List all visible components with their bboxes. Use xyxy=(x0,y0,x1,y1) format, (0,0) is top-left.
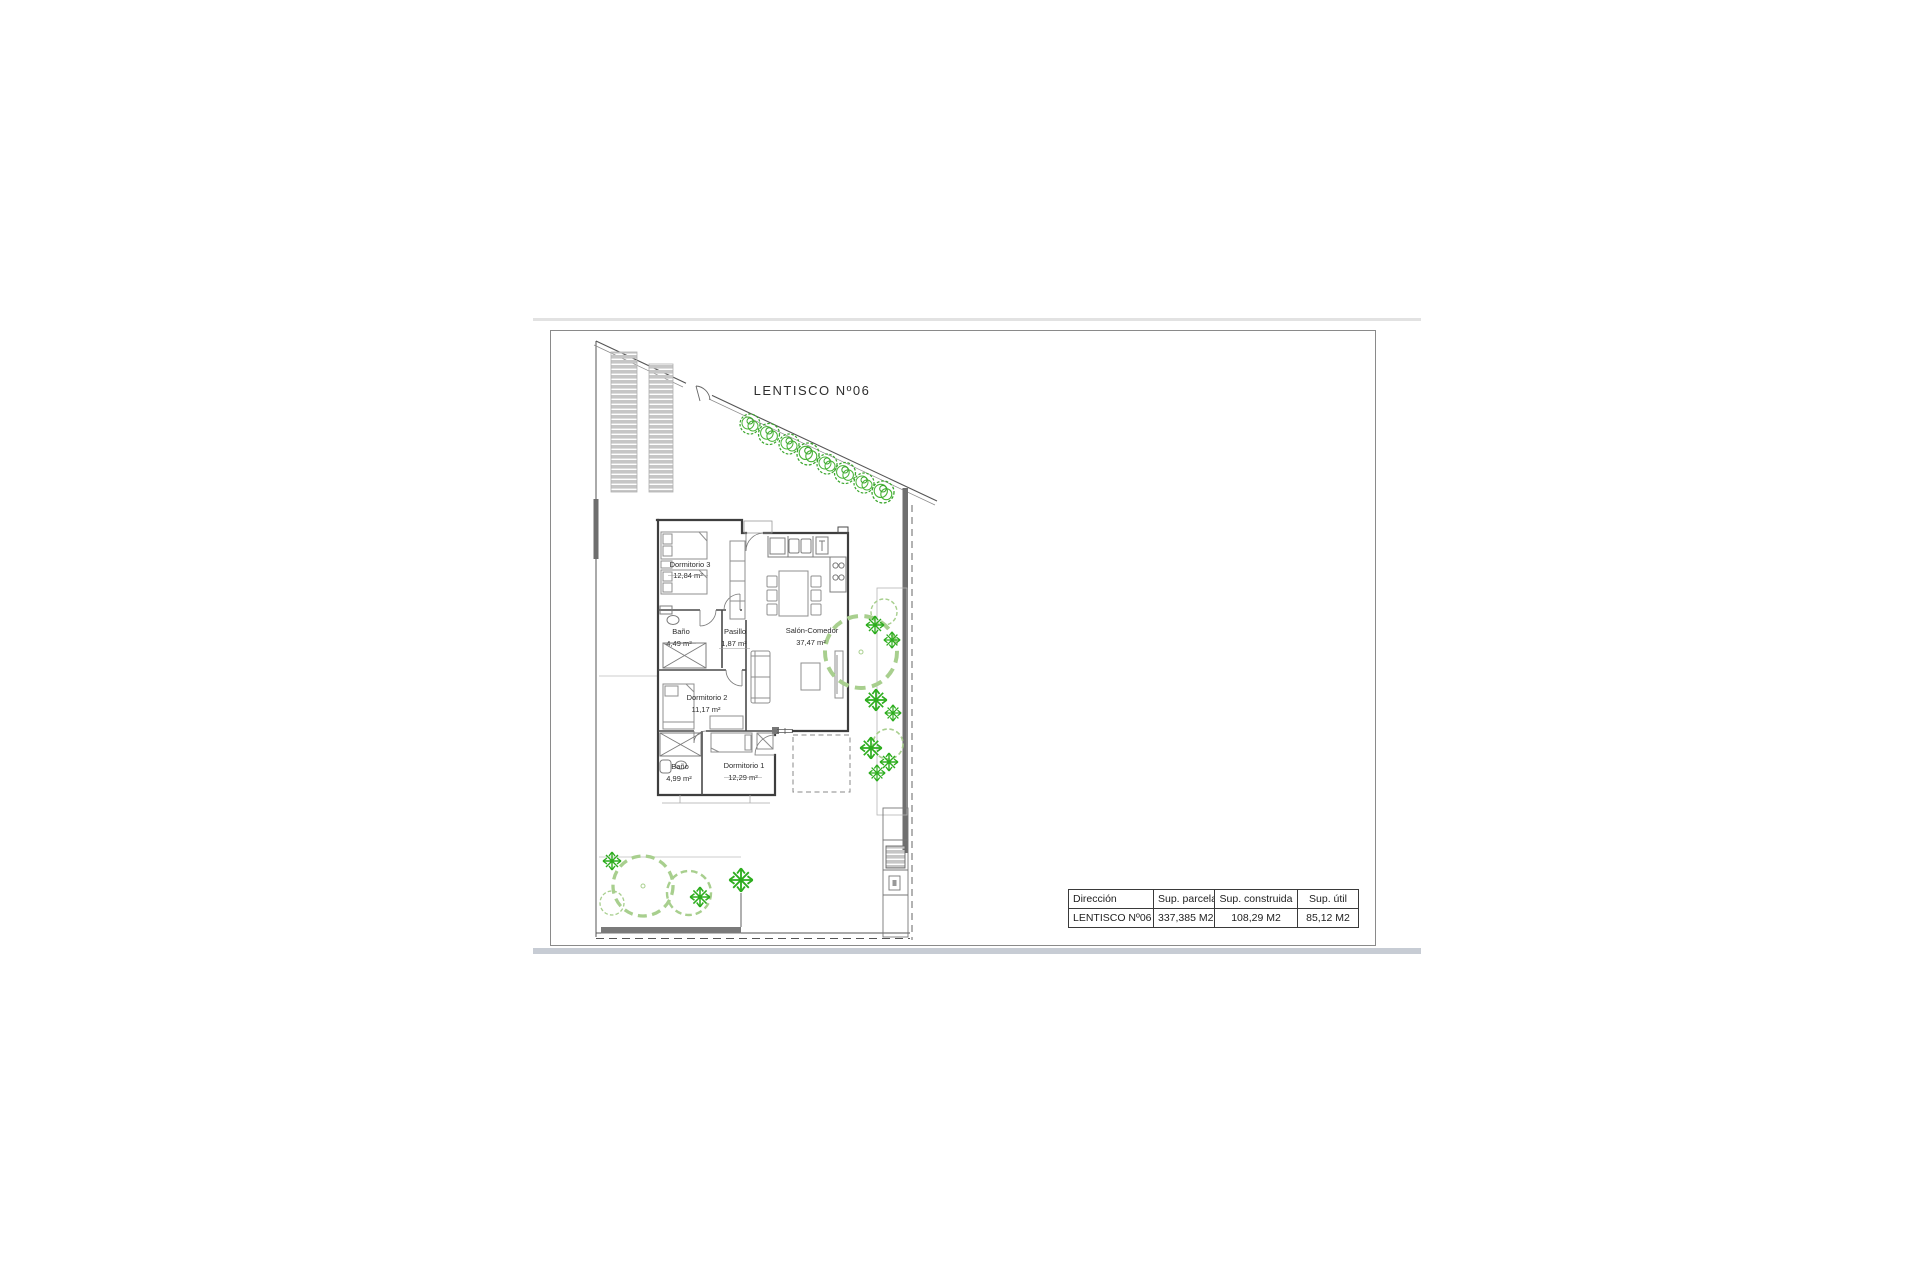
room-name: Dormitorio 2 xyxy=(687,693,728,702)
room-area: 1,87 m² xyxy=(721,639,747,648)
cell-sup-util: 85,12 M2 xyxy=(1297,909,1358,927)
street-name-label: LENTISCO Nº06 xyxy=(754,383,871,398)
room-area: 4,99 m² xyxy=(666,774,692,783)
room-dormitorio-2: Dormitorio 2 11,17 m² xyxy=(687,693,728,714)
porch-dashed-outline xyxy=(793,735,850,792)
patio-door xyxy=(777,728,793,734)
header-sup-construida: Sup. construida xyxy=(1214,890,1297,908)
room-salon-comedor: Salón-Comedor 37,47 m² xyxy=(786,626,839,647)
tv-unit xyxy=(835,651,843,698)
header-sup-parcela: Sup. parcela xyxy=(1153,890,1214,908)
room-name: Dormitorio 3 xyxy=(670,560,711,569)
terrace-step xyxy=(662,795,770,803)
dormitorio1-door-arc xyxy=(755,735,775,755)
cell-direccion: LENTISCO Nº06 xyxy=(1069,909,1153,927)
left-boundary-wall xyxy=(594,499,599,559)
floor-plan-sheet: LENTISCO Nº06 xyxy=(0,0,1920,1280)
room-area: 11,17 m² xyxy=(691,705,721,714)
coffee-table xyxy=(801,663,820,690)
bottom-garden xyxy=(600,852,753,927)
dormitorio3-wardrobe xyxy=(730,541,745,619)
surface-summary-table: Dirección Sup. parcela Sup. construida S… xyxy=(1068,889,1359,928)
entry-step xyxy=(744,521,772,533)
room-name: Baño xyxy=(672,627,690,636)
ac-unit xyxy=(886,846,905,868)
room-name: Pasillo xyxy=(724,627,746,636)
bathroom1-fixtures xyxy=(660,606,706,668)
room-name: Baño xyxy=(671,762,689,771)
table-data-row: LENTISCO Nº06 337,385 M2 108,29 M2 85,12… xyxy=(1069,908,1358,927)
dining-table xyxy=(767,571,821,616)
room-name: Salón-Comedor xyxy=(786,626,839,635)
front-door-arc xyxy=(746,533,764,551)
dormitorio1-bed xyxy=(711,733,773,752)
cell-sup-construida: 108,29 M2 xyxy=(1214,909,1297,927)
header-sup-util: Sup. útil xyxy=(1297,890,1358,908)
street-trees xyxy=(740,414,894,503)
room-area: 37,47 m² xyxy=(796,638,826,647)
kitchen-counter xyxy=(768,536,846,592)
room-name: Dormitorio 1 xyxy=(724,761,765,770)
room-bano-1: Baño 4,49 m² xyxy=(663,627,696,648)
pergola-slats xyxy=(611,352,673,492)
entrance-gate xyxy=(696,386,710,401)
bathroom1-door-arc xyxy=(700,610,716,626)
right-garden-bed xyxy=(825,588,907,815)
page-bottom-rule xyxy=(533,948,1421,954)
dormitorio2-door-arc xyxy=(726,670,742,686)
bottom-garden-wall xyxy=(601,927,741,934)
cell-sup-parcela: 337,385 M2 xyxy=(1153,909,1214,927)
room-dormitorio-1: Dormitorio 1 12,29 m² xyxy=(724,761,765,782)
sofa xyxy=(751,651,770,703)
table-header-row: Dirección Sup. parcela Sup. construida S… xyxy=(1069,890,1358,908)
site-plan-drawing: LENTISCO Nº06 xyxy=(0,0,1920,1280)
dormitorio3-door-arc xyxy=(724,594,740,610)
header-direccion: Dirección xyxy=(1069,890,1153,908)
